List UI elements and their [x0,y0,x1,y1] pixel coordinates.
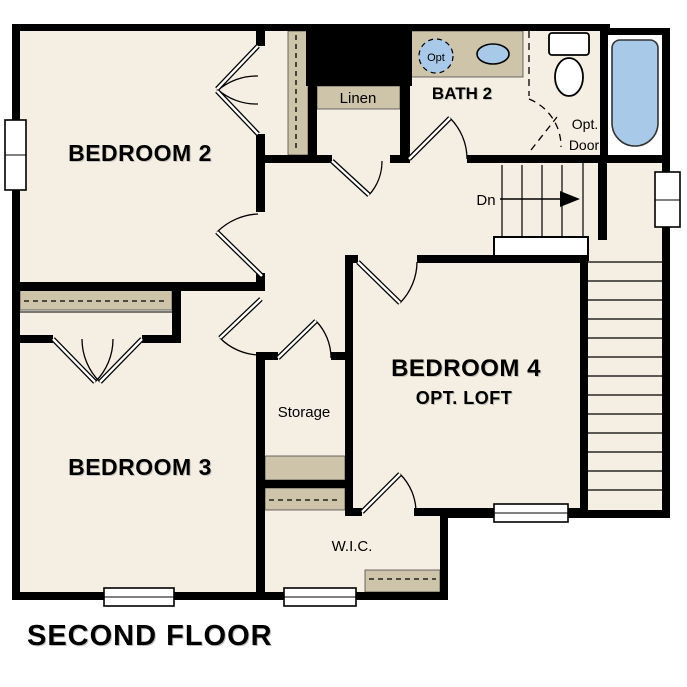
plan-title: SECOND FLOOR [27,620,273,652]
storage-label: Storage [278,404,331,421]
linen-label: Linen [340,90,377,107]
bedroom2-closet [288,31,308,155]
window-bedroom3-south [104,588,174,606]
wic-south-shelf [365,570,440,592]
stairs-dn-label: Dn [476,192,495,209]
floor-plan: BEDROOM 2 BEDROOM 3 BEDROOM 4 OPT. LOFT … [0,0,687,687]
opt-door-label-line2: Door [569,137,600,153]
opt-sink-label: Opt [427,52,445,64]
sink [477,44,509,64]
wic-label: W.I.C. [332,538,373,555]
bedroom4-label: BEDROOM 4 [391,355,541,382]
bedroom3-closet-shelf [20,290,172,312]
bath2-label: BATH 2 [432,84,492,103]
wic-north-shelf [265,488,345,510]
window-wic-south [284,588,356,606]
opt-loft-label: OPT. LOFT [416,388,513,408]
window-bedroom4-south [494,504,568,522]
bedroom3-label: BEDROOM 3 [68,454,212,480]
bedroom2-label: BEDROOM 2 [68,140,212,166]
opt-door-label-line1: Opt. [572,116,598,132]
window-bedroom2-west [5,120,26,190]
exterior-notch [448,518,687,600]
floor-plan-svg: BEDROOM 2 BEDROOM 3 BEDROOM 4 OPT. LOFT … [0,0,687,687]
bathtub [608,35,662,155]
storage-shelf [265,456,345,480]
window-stair-east [655,172,680,227]
